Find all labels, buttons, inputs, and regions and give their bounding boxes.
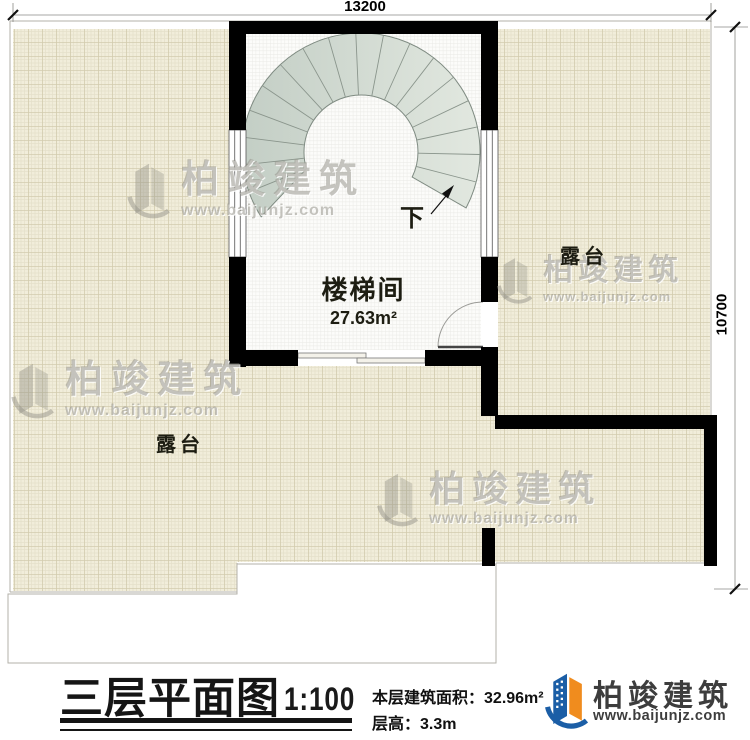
floor-height-label: 层高： bbox=[372, 716, 420, 733]
drawing-title: 三层平面图 bbox=[60, 664, 280, 726]
window-right bbox=[481, 130, 498, 257]
floor-height-value: 3.3m bbox=[420, 716, 456, 733]
drawing-scale: 1:100 bbox=[284, 681, 355, 718]
terrace-left-label: 露台 bbox=[156, 428, 204, 457]
stairwell-label-group: 楼梯间 27.63m² bbox=[246, 270, 481, 329]
stair-direction-label: 下 bbox=[400, 198, 424, 233]
terrace-right-label: 露台 bbox=[560, 240, 608, 269]
stairwell-area: 27.63m² bbox=[246, 308, 481, 329]
title-underline-thin bbox=[60, 729, 352, 731]
floor-height-line: 层高：3.3m bbox=[372, 710, 456, 734]
sliding-door bbox=[298, 353, 425, 363]
stairwell-label: 楼梯间 bbox=[246, 270, 481, 307]
floor-area-line: 本层建筑面积：32.96m² bbox=[372, 684, 544, 708]
brand-url: www.baijunjz.com bbox=[593, 708, 726, 724]
window-left bbox=[229, 130, 246, 257]
dimension-top: 13200 bbox=[325, 0, 405, 15]
title-underline bbox=[60, 718, 352, 723]
floor-plan-page: 柏竣建筑 www.baijunjz.com 柏竣建筑 www.baijunjz.… bbox=[0, 0, 750, 740]
floor-area-label: 本层建筑面积： bbox=[372, 690, 484, 707]
dimension-right: 10700 bbox=[714, 290, 731, 340]
floor-plan-drawing bbox=[0, 0, 750, 740]
brand-logo-icon bbox=[544, 668, 590, 732]
floor-area-value: 32.96m² bbox=[484, 690, 544, 707]
